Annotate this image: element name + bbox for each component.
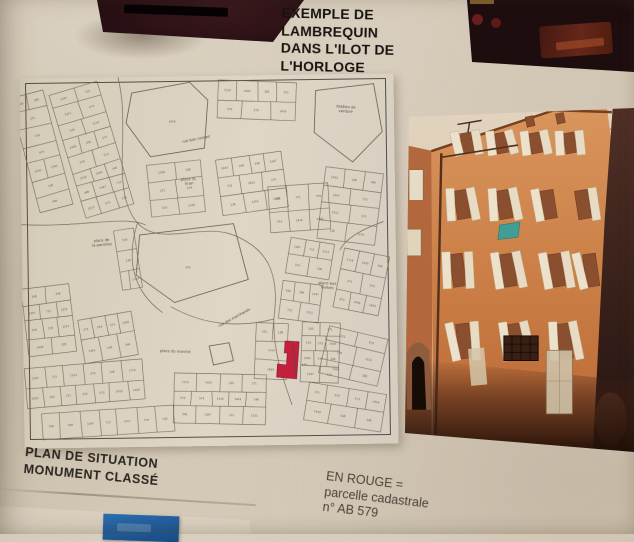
svg-text:verdure: verdure (338, 109, 353, 114)
svg-text:573: 573 (199, 396, 205, 400)
crease-line (0, 488, 256, 506)
dark-slot-shape (124, 4, 228, 17)
svg-text:573: 573 (162, 206, 168, 211)
attic-window (555, 112, 565, 124)
svg-text:148: 148 (107, 345, 113, 350)
svg-text:573: 573 (339, 297, 345, 302)
svg-text:575: 575 (32, 328, 38, 333)
svg-text:712: 712 (309, 247, 315, 252)
svg-text:1347: 1347 (307, 372, 314, 376)
svg-text:1211: 1211 (306, 310, 314, 315)
svg-text:1416: 1416 (353, 300, 361, 305)
svg-text:712: 712 (229, 413, 235, 417)
svg-text:1347: 1347 (32, 376, 39, 381)
svg-text:1443: 1443 (50, 164, 58, 170)
svg-text:575: 575 (271, 177, 277, 182)
svg-text:place du marché: place du marché (160, 349, 192, 354)
svg-text:575: 575 (89, 104, 95, 109)
svg-text:1429: 1429 (69, 144, 77, 150)
svg-text:579: 579 (97, 325, 103, 330)
svg-text:573: 573 (318, 341, 324, 345)
svg-text:1211: 1211 (331, 210, 339, 215)
svg-text:579: 579 (79, 159, 85, 164)
dark-photo-top-right (462, 0, 634, 76)
svg-text:138: 138 (162, 416, 168, 420)
svg-text:346: 346 (55, 291, 61, 296)
svg-text:205: 205 (229, 381, 235, 385)
svg-text:1416: 1416 (116, 389, 123, 394)
svg-text:579: 579 (180, 396, 186, 400)
shutter-right (464, 251, 474, 288)
svg-text:1347: 1347 (28, 311, 36, 316)
attic-window (525, 116, 535, 128)
street-line (230, 233, 276, 320)
svg-text:1114: 1114 (224, 88, 231, 92)
map-labels: théâtre deverdureplace St.Vranplace dela… (90, 104, 360, 378)
shutter-left (555, 131, 565, 156)
svg-text:346: 346 (371, 180, 377, 185)
parcel-block: 20527157957314161443 (268, 183, 331, 233)
svg-text:575: 575 (105, 200, 111, 205)
parcel-block: 1443148346134771212115751381114 (317, 167, 384, 246)
svg-text:346: 346 (254, 161, 260, 166)
svg-text:1211: 1211 (251, 413, 258, 417)
street-label: place du marché (160, 349, 192, 354)
street-label: place dela paroisse (92, 238, 113, 248)
bright-sliver (470, 0, 494, 4)
svg-text:148: 148 (48, 183, 54, 188)
svg-text:1429: 1429 (158, 170, 165, 175)
svg-text:148: 148 (285, 288, 291, 293)
svg-text:271: 271 (30, 115, 36, 120)
svg-text:1347: 1347 (99, 184, 107, 190)
church-block (209, 343, 233, 365)
svg-text:148: 148 (351, 178, 357, 183)
svg-text:1211: 1211 (87, 205, 95, 211)
svg-text:1211: 1211 (248, 180, 256, 185)
svg-text:573: 573 (254, 108, 260, 112)
svg-text:herbes: herbes (321, 286, 334, 290)
svg-text:575: 575 (368, 340, 374, 345)
shutter-left (446, 188, 456, 221)
svg-text:1114: 1114 (62, 324, 70, 329)
svg-text:271: 271 (347, 279, 353, 284)
large-parcel-205 (135, 223, 248, 303)
svg-text:148: 148 (254, 397, 260, 401)
svg-text:138: 138 (125, 258, 131, 263)
parcel-block: 14834613477121211575138 (42, 405, 175, 440)
red-blob (491, 18, 501, 28)
svg-text:573: 573 (277, 219, 283, 223)
svg-text:1347: 1347 (60, 96, 68, 102)
street-label: place St.Vran (181, 177, 198, 186)
svg-text:712: 712 (362, 197, 368, 202)
svg-text:579: 579 (34, 133, 40, 138)
facade-photo-drawing (405, 106, 634, 456)
svg-text:138: 138 (69, 127, 75, 132)
svg-text:575: 575 (90, 371, 96, 375)
parcel-block: 1114142920527157957314161443148346134771… (173, 373, 266, 425)
svg-text:1211: 1211 (322, 249, 330, 254)
left-window (407, 229, 421, 256)
parcel-block: 27157957314161443148346 (78, 311, 139, 364)
svg-text:1429: 1429 (332, 366, 340, 372)
svg-text:1416: 1416 (122, 320, 130, 325)
svg-text:1429: 1429 (31, 396, 38, 401)
title-line: EXEMPLE DE (281, 5, 421, 25)
svg-text:712: 712 (52, 374, 58, 378)
svg-text:205: 205 (185, 265, 190, 269)
svg-text:138: 138 (121, 195, 127, 200)
svg-text:1211: 1211 (64, 111, 72, 117)
svg-text:1443: 1443 (234, 397, 241, 401)
svg-text:1347: 1347 (270, 159, 278, 164)
cadastral-map: 1429205271579573141614431483461347712121… (19, 73, 398, 448)
svg-text:1443: 1443 (331, 175, 339, 180)
svg-text:205: 205 (33, 97, 39, 102)
svg-text:573: 573 (110, 322, 116, 327)
parcel-block: 14292052715795731416 (146, 160, 205, 217)
svg-text:573: 573 (354, 396, 360, 401)
svg-text:579: 579 (227, 107, 233, 111)
parcel-block: 14834613477121211 (278, 280, 322, 323)
svg-text:712: 712 (287, 308, 293, 313)
svg-text:346: 346 (299, 290, 305, 295)
svg-text:712: 712 (84, 89, 90, 94)
svg-text:1429: 1429 (361, 260, 369, 265)
svg-text:712: 712 (227, 183, 233, 188)
svg-text:1347: 1347 (87, 421, 94, 425)
large-parcel-1429 (126, 82, 209, 157)
svg-text:Vran: Vran (185, 181, 195, 186)
svg-text:148: 148 (340, 413, 346, 418)
svg-text:346: 346 (68, 423, 74, 427)
svg-text:138: 138 (230, 202, 236, 207)
svg-text:1416: 1416 (34, 168, 42, 174)
svg-text:205: 205 (85, 140, 91, 145)
svg-text:573: 573 (99, 390, 105, 394)
parcel-block: 111414292052715795731416 (217, 80, 296, 121)
svg-text:346: 346 (182, 412, 188, 416)
parcel-block: 1347712121157513811141429205271579573141… (49, 81, 134, 218)
street-label: place auxherbes (318, 281, 337, 290)
svg-text:712: 712 (116, 180, 122, 185)
caption-plan-de-situation: PLAN DE SITUATION MONUMENT CLASSÉ (23, 444, 161, 490)
svg-text:1443: 1443 (95, 170, 103, 176)
svg-text:148: 148 (31, 294, 37, 299)
svg-text:1443: 1443 (88, 348, 96, 353)
light-door (546, 350, 572, 414)
svg-text:575: 575 (144, 418, 150, 422)
svg-text:1429: 1429 (169, 119, 176, 123)
svg-text:271: 271 (252, 381, 258, 385)
svg-text:1443: 1443 (316, 217, 323, 221)
svg-text:205: 205 (49, 395, 55, 399)
svg-text:138: 138 (278, 330, 284, 334)
barred-window (504, 336, 538, 361)
svg-text:1416: 1416 (329, 342, 336, 346)
svg-text:1211: 1211 (70, 373, 77, 378)
map-frame (26, 79, 391, 440)
svg-text:1114: 1114 (129, 368, 136, 373)
svg-text:271: 271 (314, 390, 320, 395)
blue-card-marking (117, 523, 151, 532)
archway-opening (412, 356, 426, 409)
teal-lambrequin-awning (498, 222, 520, 239)
svg-text:579: 579 (302, 363, 307, 367)
svg-text:205: 205 (308, 327, 314, 331)
svg-text:573: 573 (103, 152, 109, 157)
svg-text:1114: 1114 (268, 348, 275, 352)
svg-text:1416: 1416 (188, 203, 195, 208)
street-line (19, 221, 145, 227)
svg-text:346: 346 (52, 198, 58, 203)
facade-photo (405, 106, 634, 456)
parcel-block: 5751381114 (113, 228, 142, 290)
svg-text:138: 138 (316, 266, 322, 271)
red-blob (472, 14, 483, 25)
svg-text:575: 575 (361, 214, 367, 219)
parcel-block: 121157513811141429205 (319, 326, 388, 386)
poster-title: EXEMPLE DE LAMBREQUIN DANS L'ILOT DE L'H… (280, 5, 421, 78)
svg-text:579: 579 (82, 392, 88, 396)
svg-text:1114: 1114 (346, 257, 354, 262)
street-label: rue bon conseil (182, 135, 211, 144)
cadastral-map-drawing: 1429205271579573141614431483461347712121… (19, 73, 398, 448)
svg-text:1429: 1429 (244, 89, 251, 93)
parcel-block: 27157957314161443148346 (304, 382, 387, 432)
svg-text:1114: 1114 (182, 380, 189, 384)
svg-text:1443: 1443 (314, 409, 322, 414)
svg-text:1429: 1429 (36, 345, 44, 350)
theatre-de-verdure-parcel (314, 84, 383, 163)
svg-text:1114: 1114 (365, 357, 373, 363)
street-label: théâtre deverdure (336, 105, 356, 115)
svg-text:205: 205 (362, 373, 368, 378)
svg-text:1429: 1429 (19, 101, 24, 107)
parcel-block: 205271579573141614431483461347712 (300, 322, 340, 383)
svg-text:205: 205 (377, 264, 383, 269)
svg-text:1347: 1347 (294, 244, 302, 249)
caption-en-rouge: EN ROUGE = parcelle cadastrale n° AB 579 (322, 469, 432, 527)
svg-text:579: 579 (187, 185, 193, 190)
svg-text:rue des marchands: rue des marchands (218, 307, 251, 328)
shutter-left (488, 188, 499, 221)
svg-text:1347: 1347 (333, 193, 341, 198)
parcel-block: 1114142920527157957314161443 (333, 248, 390, 316)
svg-text:579: 579 (334, 393, 340, 398)
street-label: rue des marchands (218, 307, 251, 328)
svg-text:la paroisse: la paroisse (92, 242, 113, 248)
title-line: DANS L'ILOT DE (281, 40, 421, 60)
street-line (132, 223, 163, 313)
svg-text:271: 271 (284, 90, 290, 94)
svg-text:1114: 1114 (251, 199, 259, 204)
svg-text:148: 148 (239, 163, 245, 168)
svg-text:1114: 1114 (92, 120, 100, 126)
svg-text:205: 205 (275, 196, 281, 200)
svg-text:575: 575 (122, 238, 128, 243)
svg-text:346: 346 (366, 418, 372, 423)
svg-text:1416: 1416 (372, 399, 380, 404)
left-window (409, 170, 423, 201)
svg-text:575: 575 (262, 330, 268, 334)
svg-text:346: 346 (125, 342, 131, 347)
svg-text:271: 271 (160, 188, 166, 193)
svg-text:579: 579 (369, 283, 375, 288)
svg-text:rue bon conseil: rue bon conseil (182, 135, 211, 144)
svg-text:1443: 1443 (133, 388, 140, 393)
svg-text:579: 579 (306, 341, 312, 345)
svg-text:575: 575 (295, 263, 301, 268)
pale-shutter (468, 348, 487, 386)
svg-text:579: 579 (316, 194, 322, 198)
svg-text:1416: 1416 (217, 397, 224, 401)
svg-text:205: 205 (264, 90, 270, 94)
svg-text:712: 712 (46, 309, 52, 314)
svg-text:138: 138 (48, 326, 54, 331)
svg-text:1347: 1347 (204, 412, 211, 416)
svg-text:1429: 1429 (205, 380, 212, 384)
svg-text:1347: 1347 (312, 292, 320, 297)
shutter-left (442, 252, 452, 289)
svg-text:1416: 1416 (279, 109, 286, 113)
svg-text:138: 138 (329, 228, 335, 233)
svg-text:573: 573 (39, 150, 45, 155)
svg-text:1443: 1443 (221, 165, 229, 170)
svg-text:138: 138 (336, 350, 342, 355)
svg-text:205: 205 (186, 167, 192, 172)
svg-text:1211: 1211 (124, 419, 131, 423)
svg-text:271: 271 (66, 393, 72, 397)
svg-text:1416: 1416 (296, 218, 303, 222)
svg-text:148: 148 (49, 424, 55, 428)
svg-text:205: 205 (61, 342, 67, 347)
blue-card (103, 514, 180, 542)
svg-text:1443: 1443 (369, 303, 377, 308)
svg-text:148: 148 (111, 165, 117, 170)
parcel-block: 14431483461347712121157513811141429 (215, 151, 288, 215)
svg-text:712: 712 (105, 420, 111, 424)
parcel-block: 1347712121157513811141429205271579573141… (24, 359, 145, 409)
svg-text:1429: 1429 (267, 367, 274, 371)
svg-text:271: 271 (295, 195, 301, 199)
svg-text:138: 138 (109, 370, 115, 374)
svg-text:1211: 1211 (61, 307, 69, 312)
svg-text:271: 271 (102, 135, 108, 140)
svg-text:1443: 1443 (304, 356, 311, 360)
street-line (117, 74, 229, 236)
parcel-block: 13477121211575138 (285, 237, 334, 280)
svg-text:271: 271 (83, 327, 89, 332)
svg-text:1416: 1416 (79, 175, 87, 181)
svg-text:346: 346 (83, 189, 89, 194)
